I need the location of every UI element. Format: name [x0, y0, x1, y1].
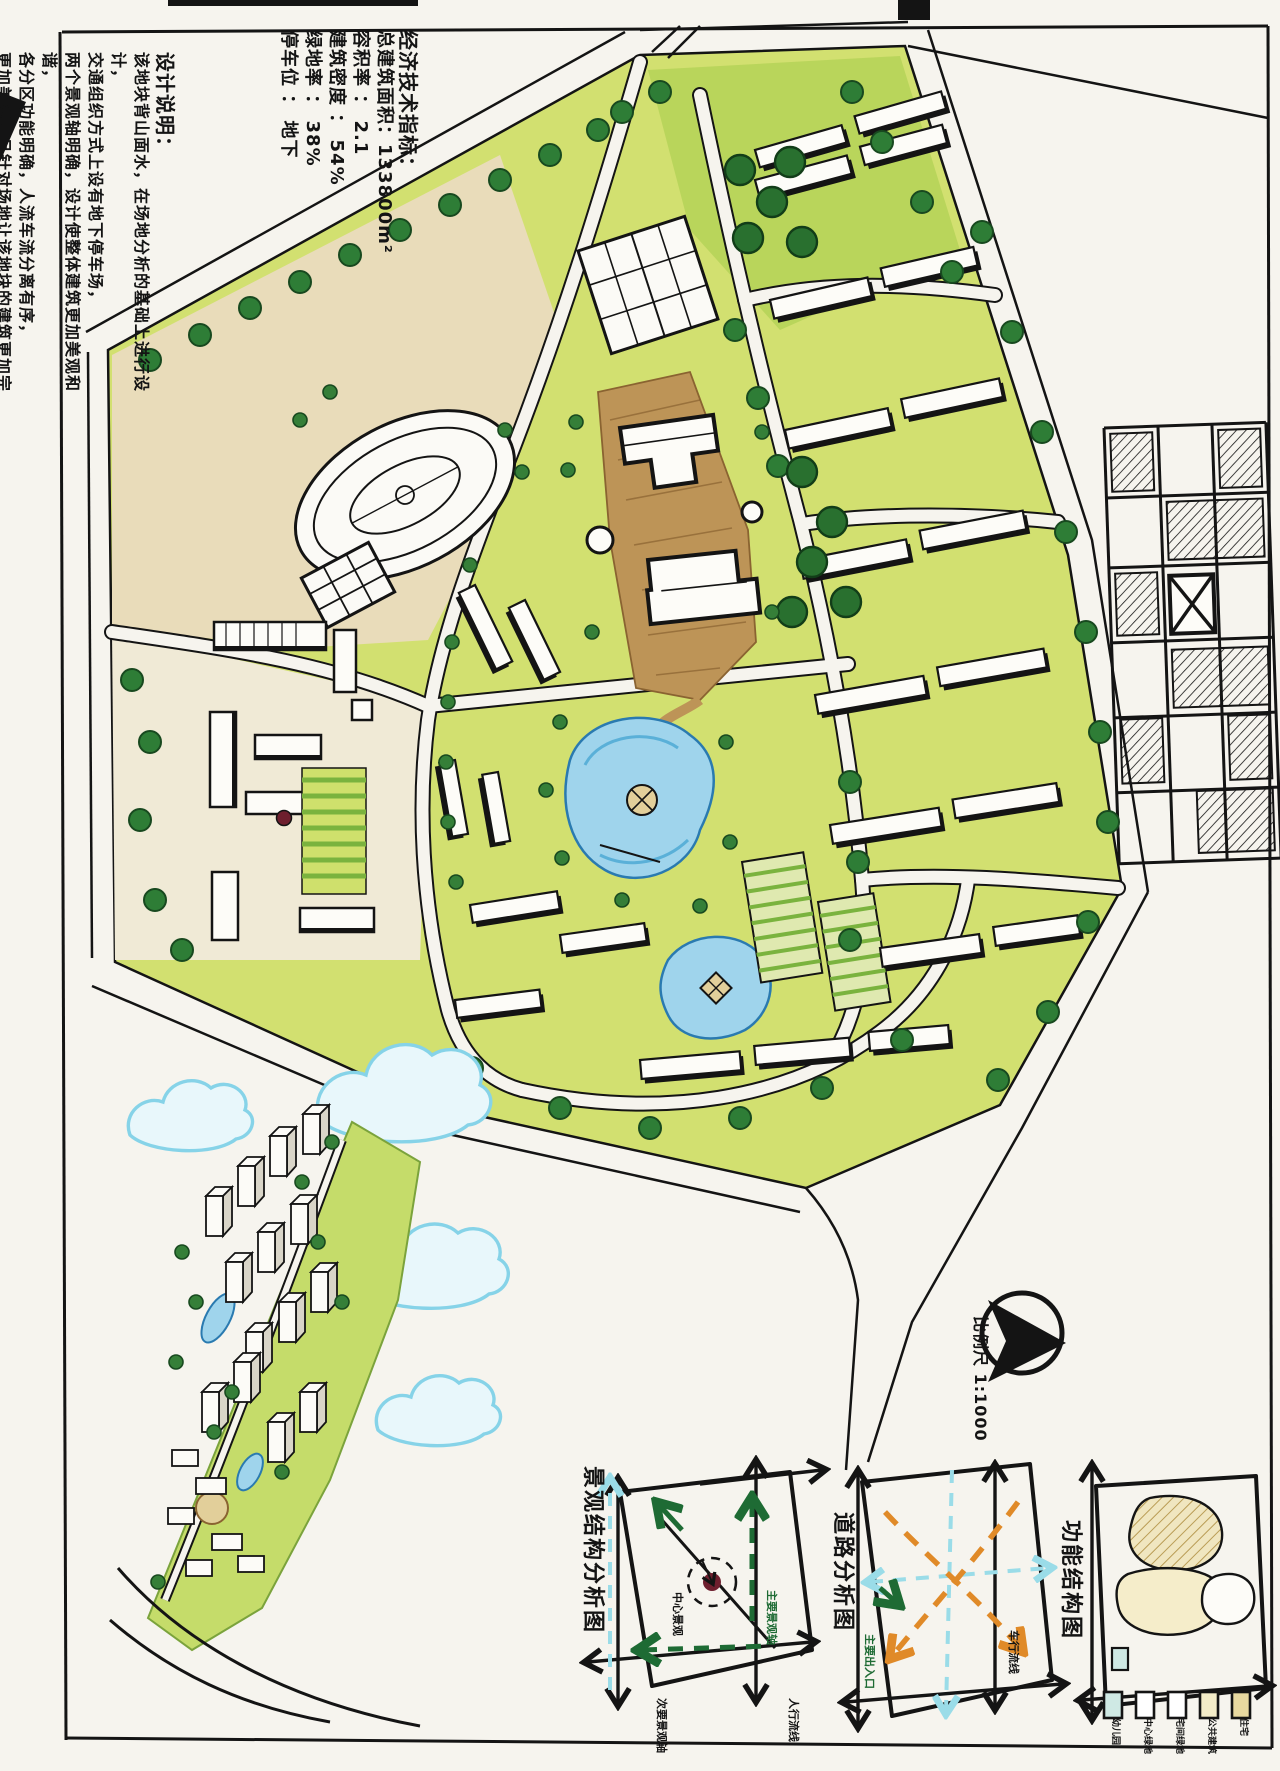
legend-label-housing: 住宅: [1237, 1718, 1248, 1744]
annotation-main-landscape-axis: 主要景观轴: [764, 1590, 778, 1652]
annotation-central-landscape: 中心景观: [670, 1592, 684, 1642]
diagram-road-title: 道路分析图: [829, 1512, 857, 1672]
key-map: [1104, 422, 1280, 863]
school-lawn-stripes: [302, 768, 366, 894]
diagram-function-title: 功能结构图: [1057, 1520, 1085, 1668]
legend-label-courtyard-green: 宅间绿地: [1173, 1718, 1184, 1756]
design-notes-line: 两个景观轴明确，设计使整体建筑更加美观和谐，: [38, 52, 84, 392]
scan-mark: [898, 0, 930, 20]
fountain-node: [742, 502, 762, 522]
design-notes: 设计说明： 该地块背山面水，在场地分析的基础上进行设计， 交通组织方式上设有地下…: [0, 52, 176, 392]
scan-mark: [168, 0, 418, 6]
diagram-landscape-structure: [588, 1464, 822, 1702]
perspective-view: [110, 1045, 508, 1726]
diagram-road-analysis: [846, 1464, 1062, 1724]
design-notes-line: 各分区功能明确，人流车流分离有序，: [15, 52, 38, 392]
drawing-sheet: 经济技术指标： 总建筑面积：133800m² 容积率 ： 2.1 建筑密度 ： …: [0, 0, 1280, 1771]
fountain-node: [587, 527, 613, 553]
indicator-green-ratio: 绿地率 ： 38%: [300, 30, 324, 335]
annotation-pedestrian-route: 人行流线: [786, 1698, 800, 1750]
key-map-site-block: [1169, 574, 1215, 634]
annotation-secondary-landscape-axis: 次要景观轴: [654, 1698, 668, 1760]
indicator-parking: 停车位 ： 地下: [276, 30, 300, 335]
diagram-function-structure: [1082, 1468, 1268, 1718]
indicator-far: 容积率 ： 2.1: [348, 30, 372, 335]
design-notes-line: 交通组织方式上设有地下停车场，: [84, 52, 107, 392]
economic-indicators: 经济技术指标： 总建筑面积：133800m² 容积率 ： 2.1 建筑密度 ： …: [276, 30, 420, 335]
school-red-feature: [277, 811, 292, 826]
indicator-building-density: 建筑密度 ： 54%: [324, 30, 348, 335]
design-notes-title: 设计说明：: [153, 52, 176, 392]
north-arrow: [982, 1293, 1066, 1382]
diagram-landscape-title: 景观结构分析图: [579, 1466, 607, 1644]
indicators-title: 经济技术指标：: [396, 30, 420, 335]
annotation-main-entrance: 主要出入口: [862, 1634, 876, 1696]
south-pond: [661, 937, 771, 1039]
annotation-vehicle-route: 车行流线: [1006, 1630, 1020, 1682]
design-notes-line: 更加美观，且针对场地让该地块的建筑更加完美。: [0, 52, 15, 392]
indicator-total-floor-area: 总建筑面积：133800m²: [372, 30, 396, 335]
legend-label-kindergarten: 幼儿园: [1109, 1718, 1120, 1750]
design-notes-line: 该地块背山面水，在场地分析的基础上进行设计，: [107, 52, 153, 392]
legend-label-central-green: 中心绿地: [1141, 1718, 1152, 1756]
scale-label: 比例尺 1:1000: [970, 1316, 990, 1446]
drawing-linework: [0, 0, 1280, 1771]
legend-label-public-building: 公共建筑: [1205, 1718, 1216, 1756]
